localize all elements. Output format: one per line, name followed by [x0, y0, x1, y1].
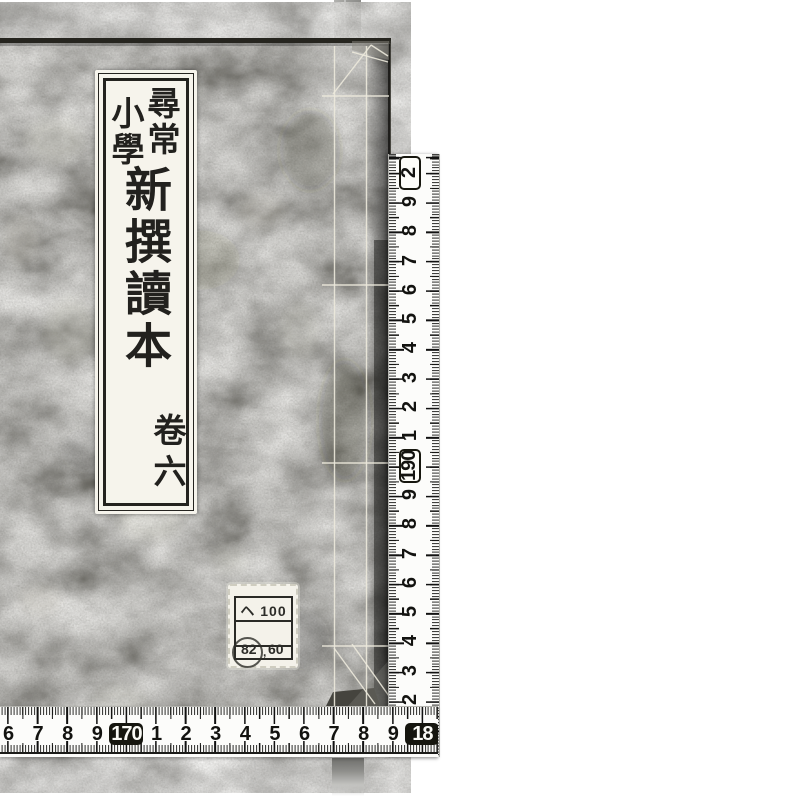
vertical-ruler-label: 2: [399, 390, 421, 424]
horizontal-ruler-label: 18: [405, 723, 438, 745]
hanging-strap-bottom: [332, 758, 364, 796]
title-volume: 卷六: [149, 413, 182, 495]
vertical-ruler-label: 5: [399, 595, 421, 629]
ruler-edge: [439, 154, 440, 757]
label-number-right: 60: [268, 641, 284, 657]
photo-canvas: 尋常 小學 新撰讀本 卷六 ヘ 100 82 , 60 234567891901…: [0, 0, 800, 800]
vertical-ruler-label: 1: [399, 419, 421, 453]
vertical-ruler-label: 3: [399, 361, 421, 395]
title-main: 新撰讀本: [119, 165, 166, 373]
label-number-line: 82 , 60: [236, 641, 291, 657]
title-slip: 尋常 小學 新撰讀本 卷六: [95, 70, 197, 514]
book-top-edge-shadow: [0, 43, 391, 46]
title-header-left: 小學: [107, 96, 140, 168]
library-label: ヘ 100 82 , 60: [228, 584, 298, 668]
label-table: ヘ 100 82 , 60: [234, 596, 293, 660]
vertical-ruler-label: 8: [399, 214, 421, 248]
ruler-cm-ticks: [0, 707, 438, 724]
vertical-ruler-label: 3: [399, 654, 421, 688]
book-top-edge: [0, 38, 391, 43]
vertical-ruler-label: 190: [399, 449, 421, 483]
ruler-cm-ticks: [426, 154, 439, 757]
vertical-ruler-label: 2: [399, 156, 421, 190]
circular-stamp: [232, 637, 263, 668]
vertical-ruler-label: 4: [399, 624, 421, 658]
vertical-ruler-label: 8: [399, 507, 421, 541]
vertical-ruler-label: 4: [399, 331, 421, 365]
label-number-separator: ,: [263, 645, 266, 659]
vertical-ruler-label: 5: [399, 302, 421, 336]
horizontal-ruler: 678917012345678918: [0, 706, 438, 757]
ruler-baseline: [0, 752, 438, 754]
label-class-line: ヘ 100: [236, 601, 291, 621]
vertical-ruler-label: 7: [399, 537, 421, 571]
title-header-right: 尋常: [143, 86, 176, 158]
vertical-ruler-label: 7: [399, 244, 421, 278]
vertical-ruler: 234567891901234567892: [388, 154, 440, 757]
